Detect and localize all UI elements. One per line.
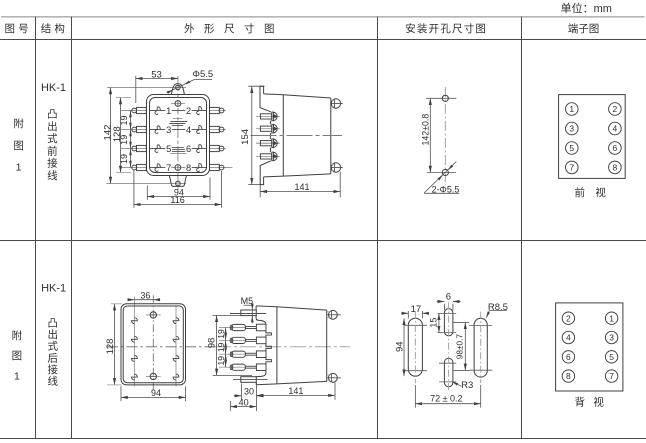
svg-text:4: 4	[613, 124, 618, 134]
svg-text:8: 8	[613, 163, 618, 173]
svg-text:2: 2	[613, 104, 618, 114]
svg-text:图: 图	[264, 23, 275, 35]
svg-text:40: 40	[239, 397, 249, 407]
svg-text:7: 7	[609, 371, 614, 381]
svg-text:图: 图	[5, 23, 16, 35]
svg-text:1: 1	[14, 371, 20, 383]
svg-text:外: 外	[184, 23, 195, 35]
svg-text:寸: 寸	[244, 22, 255, 35]
svg-text:附: 附	[13, 117, 24, 130]
svg-text:单位：mm: 单位：mm	[561, 1, 612, 15]
svg-text:安装开孔尺寸图: 安装开孔尺寸图	[405, 22, 487, 35]
svg-text:形: 形	[204, 23, 215, 35]
svg-text:19: 19	[119, 154, 129, 164]
svg-text:19: 19	[216, 342, 226, 352]
svg-text:128: 128	[105, 339, 116, 355]
svg-text:5: 5	[609, 352, 614, 362]
svg-text:19: 19	[119, 135, 129, 145]
svg-text:8: 8	[186, 163, 191, 173]
svg-text:R8.5: R8.5	[488, 302, 508, 313]
svg-text:线: 线	[48, 375, 59, 388]
svg-text:号: 号	[18, 23, 29, 35]
svg-text:6: 6	[186, 144, 191, 154]
svg-text:36: 36	[140, 290, 150, 300]
svg-text:2-Φ5.5: 2-Φ5.5	[432, 184, 460, 194]
svg-text:Φ5.5: Φ5.5	[192, 69, 213, 80]
svg-text:出: 出	[48, 328, 59, 341]
svg-text:3: 3	[569, 124, 574, 134]
svg-text:15: 15	[429, 318, 439, 328]
svg-text:94: 94	[151, 388, 161, 398]
svg-text:154: 154	[240, 129, 251, 145]
svg-text:53: 53	[151, 69, 162, 80]
svg-text:94: 94	[395, 341, 406, 352]
svg-text:7: 7	[166, 163, 171, 173]
svg-text:6: 6	[566, 352, 571, 362]
svg-text:3: 3	[166, 125, 171, 135]
svg-text:1: 1	[609, 313, 614, 323]
svg-text:30: 30	[244, 387, 254, 397]
svg-text:19: 19	[216, 356, 226, 366]
svg-text:1: 1	[166, 106, 171, 116]
svg-text:17: 17	[411, 304, 422, 315]
svg-text:8: 8	[566, 371, 571, 381]
svg-text:附: 附	[12, 329, 23, 342]
svg-text:尺: 尺	[224, 23, 235, 35]
svg-text:72 ± 0.2: 72 ± 0.2	[430, 394, 462, 404]
svg-text:141: 141	[288, 386, 303, 396]
svg-text:线: 线	[47, 169, 58, 182]
svg-text:1: 1	[16, 162, 22, 174]
svg-text:接: 接	[48, 363, 59, 376]
svg-text:结: 结	[41, 22, 52, 35]
svg-text:HK-1: HK-1	[41, 282, 66, 294]
svg-text:4: 4	[186, 125, 191, 135]
svg-text:端子图: 端子图	[568, 22, 600, 35]
svg-text:5: 5	[166, 144, 171, 154]
svg-text:2: 2	[186, 106, 191, 116]
svg-text:凸: 凸	[47, 109, 58, 121]
svg-text:后: 后	[48, 352, 59, 364]
svg-text:式: 式	[48, 340, 59, 353]
svg-text:视: 视	[595, 186, 606, 199]
svg-text:接: 接	[47, 157, 58, 170]
svg-text:前: 前	[575, 186, 586, 199]
svg-text:式: 式	[47, 132, 58, 145]
svg-text:4: 4	[566, 333, 571, 343]
svg-text:图: 图	[12, 350, 23, 362]
svg-text:2: 2	[566, 313, 571, 323]
svg-text:5: 5	[569, 143, 574, 153]
svg-text:凸: 凸	[48, 318, 59, 330]
svg-text:图: 图	[13, 140, 24, 152]
svg-text:前: 前	[47, 144, 58, 157]
svg-text:背: 背	[574, 395, 585, 408]
svg-text:构: 构	[54, 22, 65, 35]
svg-text:141: 141	[294, 182, 309, 192]
svg-text:142±0.8: 142±0.8	[421, 114, 431, 146]
svg-text:1: 1	[569, 104, 574, 114]
svg-text:19: 19	[216, 329, 226, 339]
svg-text:7: 7	[569, 163, 574, 173]
svg-text:116: 116	[170, 195, 184, 205]
svg-text:6: 6	[446, 291, 451, 302]
svg-text:出: 出	[47, 120, 58, 133]
svg-text:视: 视	[593, 395, 604, 408]
svg-text:HK-1: HK-1	[41, 82, 66, 94]
svg-text:19: 19	[119, 115, 129, 125]
svg-text:R3: R3	[461, 380, 473, 391]
svg-text:3: 3	[609, 333, 614, 343]
svg-text:98±0.7: 98±0.7	[454, 334, 464, 360]
svg-text:6: 6	[613, 143, 618, 153]
